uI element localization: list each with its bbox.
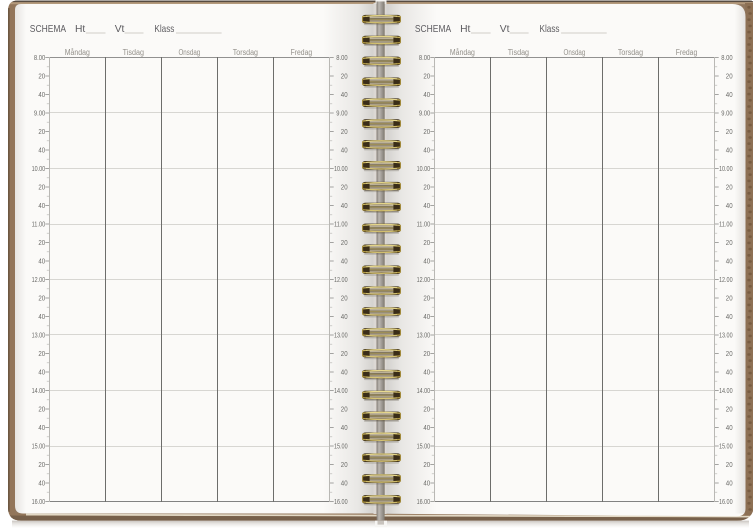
svg-text:14.00: 14.00	[417, 388, 431, 395]
svg-text:Måndag: Måndag	[65, 48, 90, 57]
svg-text:20: 20	[726, 407, 733, 414]
svg-text:20: 20	[423, 296, 430, 303]
svg-text:20: 20	[38, 407, 45, 414]
svg-text:13.00: 13.00	[417, 333, 431, 340]
svg-text:SCHEMA: SCHEMA	[415, 24, 451, 35]
svg-text:8.00: 8.00	[34, 55, 45, 62]
svg-text:40: 40	[726, 425, 733, 432]
svg-text:40: 40	[341, 481, 348, 488]
svg-text:40: 40	[726, 481, 733, 488]
svg-text:8.00: 8.00	[721, 55, 732, 62]
svg-text:40: 40	[726, 92, 733, 99]
svg-text:Fredag: Fredag	[291, 48, 313, 57]
svg-text:40: 40	[341, 203, 348, 210]
svg-text:40: 40	[341, 259, 348, 266]
svg-text:40: 40	[38, 425, 45, 432]
svg-text:Fredag: Fredag	[676, 48, 698, 57]
svg-text:40: 40	[38, 148, 45, 155]
svg-text:10.00: 10.00	[417, 166, 431, 173]
svg-text:40: 40	[341, 425, 348, 432]
svg-text:Torsdag: Torsdag	[618, 48, 643, 57]
svg-text:40: 40	[423, 259, 430, 266]
svg-text:40: 40	[726, 203, 733, 210]
svg-text:11.00: 11.00	[32, 222, 46, 229]
svg-text:8.00: 8.00	[419, 55, 430, 62]
svg-text:20: 20	[726, 129, 733, 136]
svg-text:40: 40	[341, 92, 348, 99]
svg-text:16.00: 16.00	[417, 499, 431, 506]
svg-text:40: 40	[341, 314, 348, 321]
svg-text:40: 40	[423, 92, 430, 99]
svg-text:14.00: 14.00	[32, 388, 46, 395]
svg-text:40: 40	[341, 370, 348, 377]
svg-text:20: 20	[423, 351, 430, 358]
svg-text:11.00: 11.00	[417, 222, 431, 229]
svg-text:20: 20	[423, 185, 430, 192]
svg-text:11.00: 11.00	[334, 222, 348, 229]
svg-text:13.00: 13.00	[719, 333, 733, 340]
svg-text:20: 20	[341, 185, 348, 192]
svg-text:Ht: Ht	[460, 24, 470, 35]
svg-text:40: 40	[341, 148, 348, 155]
svg-text:11.00: 11.00	[719, 222, 733, 229]
svg-text:13.00: 13.00	[334, 333, 348, 340]
svg-text:Tisdag: Tisdag	[508, 48, 529, 57]
svg-text:10.00: 10.00	[32, 166, 46, 173]
svg-text:40: 40	[38, 481, 45, 488]
svg-text:40: 40	[38, 370, 45, 377]
svg-text:40: 40	[38, 259, 45, 266]
svg-text:SCHEMA: SCHEMA	[30, 24, 66, 35]
svg-text:12.00: 12.00	[32, 277, 46, 284]
svg-text:Onsdag: Onsdag	[564, 48, 586, 57]
svg-text:12.00: 12.00	[719, 277, 733, 284]
svg-text:20: 20	[341, 462, 348, 469]
svg-text:8.00: 8.00	[336, 55, 347, 62]
svg-text:40: 40	[423, 314, 430, 321]
svg-text:20: 20	[423, 462, 430, 469]
svg-text:16.00: 16.00	[334, 499, 348, 506]
svg-text:20: 20	[726, 462, 733, 469]
svg-text:Vt: Vt	[500, 24, 510, 35]
svg-text:12.00: 12.00	[417, 277, 431, 284]
svg-text:16.00: 16.00	[32, 499, 46, 506]
svg-text:40: 40	[423, 425, 430, 432]
svg-text:20: 20	[341, 296, 348, 303]
svg-text:16.00: 16.00	[719, 499, 733, 506]
svg-text:40: 40	[423, 203, 430, 210]
svg-text:12.00: 12.00	[334, 277, 348, 284]
svg-text:10.00: 10.00	[334, 166, 348, 173]
svg-text:10.00: 10.00	[719, 166, 733, 173]
svg-text:20: 20	[341, 407, 348, 414]
svg-text:20: 20	[423, 240, 430, 247]
svg-text:40: 40	[423, 370, 430, 377]
svg-text:20: 20	[726, 74, 733, 81]
svg-text:Tisdag: Tisdag	[123, 48, 144, 57]
svg-text:20: 20	[341, 351, 348, 358]
svg-text:20: 20	[38, 185, 45, 192]
svg-text:9.00: 9.00	[721, 111, 732, 118]
svg-text:40: 40	[38, 203, 45, 210]
svg-text:15.00: 15.00	[719, 444, 733, 451]
svg-text:40: 40	[38, 314, 45, 321]
svg-text:20: 20	[38, 296, 45, 303]
svg-text:14.00: 14.00	[334, 388, 348, 395]
svg-text:Måndag: Måndag	[450, 48, 475, 57]
svg-text:9.00: 9.00	[419, 111, 430, 118]
svg-text:15.00: 15.00	[417, 444, 431, 451]
svg-text:20: 20	[341, 129, 348, 136]
svg-text:9.00: 9.00	[336, 111, 347, 118]
svg-text:9.00: 9.00	[34, 111, 45, 118]
svg-text:20: 20	[38, 129, 45, 136]
svg-text:14.00: 14.00	[719, 388, 733, 395]
svg-text:20: 20	[726, 185, 733, 192]
svg-text:20: 20	[423, 74, 430, 81]
svg-text:40: 40	[726, 259, 733, 266]
svg-text:20: 20	[423, 407, 430, 414]
svg-text:20: 20	[38, 240, 45, 247]
svg-text:40: 40	[423, 148, 430, 155]
svg-text:20: 20	[38, 74, 45, 81]
svg-text:13.00: 13.00	[32, 333, 46, 340]
svg-text:Vt: Vt	[115, 24, 125, 35]
svg-text:40: 40	[726, 370, 733, 377]
svg-text:Torsdag: Torsdag	[233, 48, 258, 57]
svg-text:40: 40	[423, 481, 430, 488]
svg-text:20: 20	[726, 240, 733, 247]
svg-text:Klass: Klass	[540, 24, 560, 35]
svg-text:20: 20	[726, 296, 733, 303]
svg-text:20: 20	[38, 351, 45, 358]
svg-text:20: 20	[38, 462, 45, 469]
svg-text:40: 40	[726, 148, 733, 155]
svg-text:15.00: 15.00	[334, 444, 348, 451]
svg-text:15.00: 15.00	[32, 444, 46, 451]
svg-text:20: 20	[423, 129, 430, 136]
svg-text:20: 20	[726, 351, 733, 358]
svg-text:40: 40	[38, 92, 45, 99]
svg-text:Klass: Klass	[154, 24, 174, 35]
svg-text:20: 20	[341, 74, 348, 81]
svg-text:20: 20	[341, 240, 348, 247]
svg-text:Onsdag: Onsdag	[178, 48, 200, 57]
svg-text:Ht: Ht	[75, 24, 85, 35]
svg-text:40: 40	[726, 314, 733, 321]
